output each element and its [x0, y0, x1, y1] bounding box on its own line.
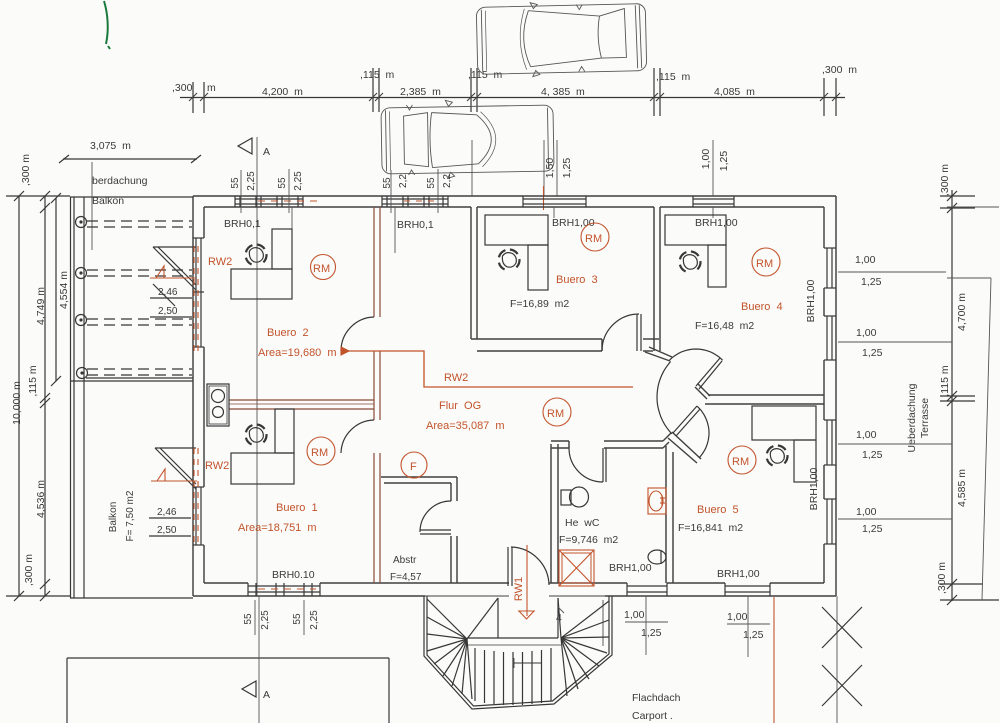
svg-text:Area=35,087 m: Area=35,087 m — [426, 420, 505, 432]
svg-text:55: 55 — [426, 177, 437, 189]
svg-text:55: 55 — [292, 613, 303, 625]
svg-text:,115 m: ,115 m — [468, 69, 502, 81]
svg-text:1,25: 1,25 — [743, 629, 764, 641]
svg-text:RM: RM — [732, 456, 749, 468]
svg-text:BRH0,1: BRH0,1 — [224, 218, 261, 230]
svg-text:2,25: 2,25 — [309, 610, 320, 630]
svg-text:1,25: 1,25 — [561, 158, 573, 179]
svg-text:BRH1,00: BRH1,00 — [609, 562, 652, 574]
svg-text:,115 m: ,115 m — [939, 365, 951, 397]
svg-text:1,00: 1,00 — [856, 429, 877, 441]
svg-text:Flur OG: Flur OG — [439, 400, 481, 412]
svg-text:,300 m: ,300 m — [20, 154, 32, 186]
svg-text:Terrasse: Terrasse — [919, 398, 931, 438]
svg-text:1,00: 1,00 — [856, 506, 877, 518]
svg-text:RM: RM — [585, 233, 602, 245]
svg-text:A: A — [263, 146, 270, 158]
svg-text:F=16,48 m2: F=16,48 m2 — [695, 320, 754, 332]
svg-text:4, 385 m: 4, 385 m — [541, 86, 585, 98]
svg-text:Area=19,680 m: Area=19,680 m — [258, 347, 337, 359]
svg-text:4,536 m: 4,536 m — [35, 480, 47, 518]
svg-text:He wC: He wC — [565, 517, 600, 529]
svg-text:1,25: 1,25 — [862, 449, 883, 461]
svg-text:BRH0,1: BRH0,1 — [397, 219, 434, 231]
svg-text:1,00: 1,00 — [727, 611, 748, 623]
svg-text:F: F — [410, 461, 417, 473]
svg-text:,300 m: ,300 m — [23, 554, 35, 586]
svg-text:55: 55 — [243, 613, 254, 625]
svg-text:2,50: 2,50 — [157, 525, 177, 536]
svg-text:2,2: 2,2 — [398, 174, 409, 188]
svg-text:2,46: 2,46 — [157, 507, 177, 518]
svg-text:RM: RM — [313, 263, 330, 275]
svg-text:RW1: RW1 — [513, 577, 525, 601]
svg-text:,300 m: ,300 m — [936, 562, 948, 594]
svg-text:,300 m: ,300 m — [822, 64, 857, 76]
svg-text:F=4,57: F=4,57 — [390, 572, 422, 583]
svg-text:Balkon: Balkon — [108, 502, 119, 533]
svg-text:4,749 m: 4,749 m — [35, 287, 47, 325]
svg-text:RW2: RW2 — [444, 372, 468, 384]
svg-text:1,25: 1,25 — [862, 523, 883, 535]
svg-text:BRH1,00: BRH1,00 — [808, 468, 820, 511]
svg-text:,300 m: ,300 m — [939, 164, 951, 196]
svg-text:1,25: 1,25 — [861, 276, 882, 288]
svg-text:1,25: 1,25 — [718, 151, 730, 172]
svg-text:BRH1,00: BRH1,00 — [717, 568, 760, 580]
svg-text:55: 55 — [230, 177, 241, 189]
svg-text:10,000 m: 10,000 m — [11, 381, 23, 425]
svg-text:Buero 4: Buero 4 — [741, 301, 783, 313]
svg-text:4,200 m: 4,200 m — [262, 86, 303, 98]
svg-text:4,554 m: 4,554 m — [58, 271, 70, 309]
svg-text:m: m — [207, 82, 216, 94]
svg-text:2,2: 2,2 — [442, 174, 453, 188]
svg-text:55: 55 — [277, 177, 288, 189]
svg-text:RW2: RW2 — [208, 256, 232, 268]
svg-text:1,00: 1,00 — [856, 327, 877, 339]
svg-text:1,50: 1,50 — [544, 158, 556, 179]
svg-text:1,00: 1,00 — [624, 609, 645, 621]
svg-text:2,25: 2,25 — [246, 171, 257, 191]
svg-text:Buero 1: Buero 1 — [276, 502, 318, 514]
svg-text:,115 m: ,115 m — [360, 69, 394, 81]
svg-text:2,46: 2,46 — [158, 287, 178, 298]
svg-text:RM: RM — [756, 258, 773, 270]
svg-text:BRH1,00: BRH1,00 — [552, 217, 595, 229]
svg-text:3,075 m: 3,075 m — [90, 140, 131, 152]
svg-text:RM: RM — [311, 447, 328, 459]
svg-text:4,700 m: 4,700 m — [956, 293, 968, 331]
svg-text:2,50: 2,50 — [158, 306, 178, 317]
svg-text:1,00: 1,00 — [855, 254, 876, 266]
svg-text:1,25: 1,25 — [862, 347, 883, 359]
svg-text:Buero 2: Buero 2 — [267, 327, 309, 339]
svg-text:F=16,89 m2: F=16,89 m2 — [510, 298, 569, 310]
svg-text:4,585 m: 4,585 m — [956, 469, 968, 507]
svg-text:Flachdach: Flachdach — [632, 692, 681, 704]
svg-text:Buero 5: Buero 5 — [697, 504, 739, 516]
svg-text:RM: RM — [547, 408, 564, 420]
svg-text:F= 7,50 m2: F= 7,50 m2 — [125, 490, 136, 541]
svg-text:BRH0.10: BRH0.10 — [272, 569, 315, 581]
svg-text:BRH1,00: BRH1,00 — [695, 217, 738, 229]
svg-text:Abstr: Abstr — [393, 555, 417, 566]
svg-text:Ueberdachung: Ueberdachung — [906, 383, 918, 452]
svg-text:berdachung: berdachung — [92, 175, 148, 187]
svg-text:2,25: 2,25 — [293, 171, 304, 191]
svg-text:,115 m: ,115 m — [656, 71, 690, 83]
svg-text:2,25: 2,25 — [260, 610, 271, 630]
svg-text:Area=18,751 m: Area=18,751 m — [238, 522, 317, 534]
svg-text:4,085 m: 4,085 m — [714, 86, 755, 98]
svg-text:F=16,841 m2: F=16,841 m2 — [678, 522, 743, 534]
svg-text:RW2: RW2 — [205, 460, 229, 472]
svg-text:,300: ,300 — [172, 82, 193, 94]
svg-text:Carport .: Carport . — [632, 710, 673, 722]
svg-text:A: A — [263, 689, 270, 701]
svg-text:BRH1,00: BRH1,00 — [805, 280, 817, 323]
svg-text:F=9,746 m2: F=9,746 m2 — [559, 534, 618, 546]
svg-text:,115 m: ,115 m — [27, 365, 39, 397]
svg-text:1,00: 1,00 — [700, 149, 712, 170]
svg-text:4: 4 — [556, 612, 562, 624]
svg-text:1,25: 1,25 — [641, 627, 662, 639]
svg-text:2,385 m: 2,385 m — [400, 86, 441, 98]
svg-text:Buero 3: Buero 3 — [556, 274, 598, 286]
